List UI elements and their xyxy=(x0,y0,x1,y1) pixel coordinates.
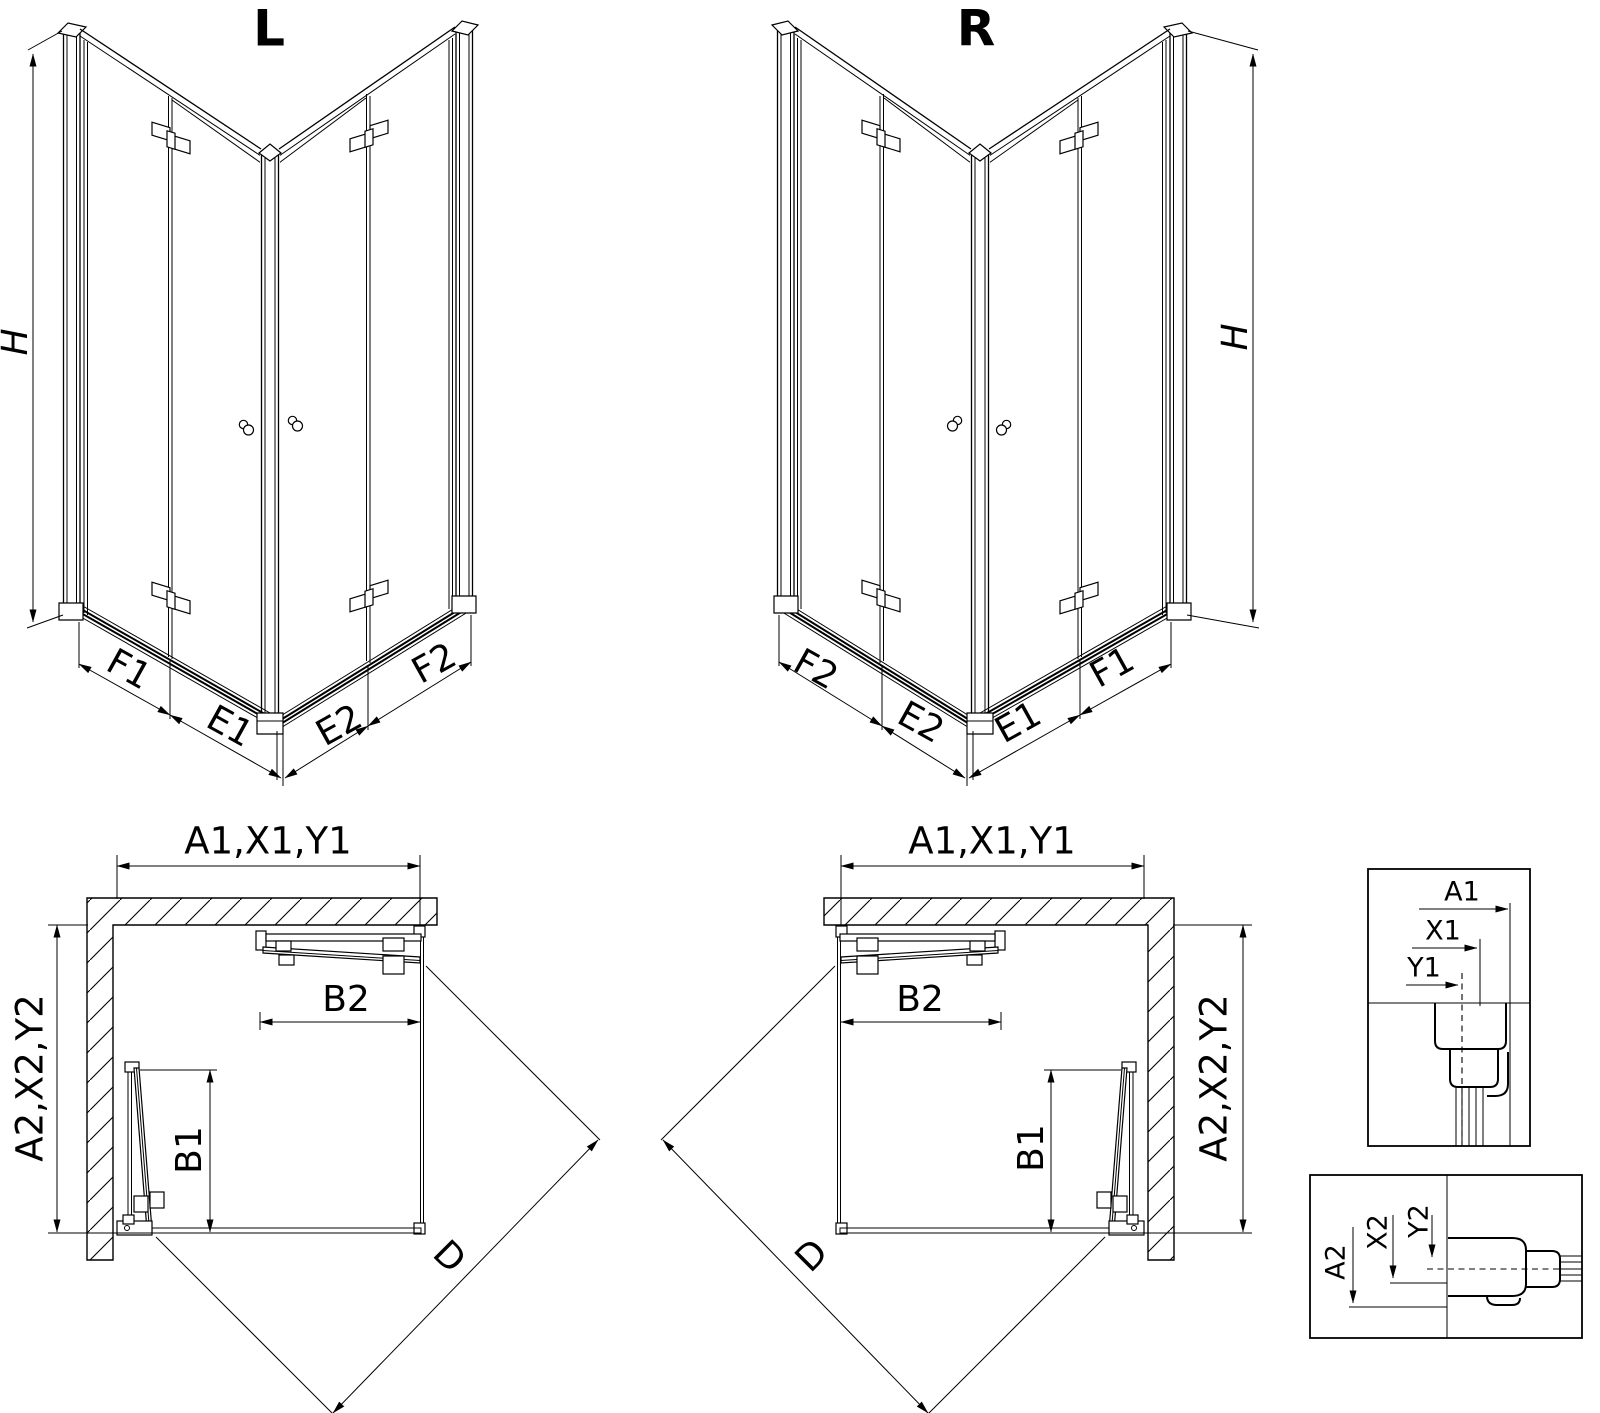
dim-depth-left-plan: A2,X2,Y2 xyxy=(9,994,52,1161)
dim-depth-right-plan: A2,X2,Y2 xyxy=(1193,994,1236,1161)
plan-view-left xyxy=(48,855,600,1413)
detail-a1-label: A1 xyxy=(1444,877,1480,908)
detail-a2-label: A2 xyxy=(1321,1244,1352,1280)
detail-x1-label: X1 xyxy=(1425,916,1461,947)
dim-b1-right-plan: B1 xyxy=(1011,1124,1052,1172)
dim-diagonal-right-plan: D xyxy=(788,1232,837,1281)
shower-enclosure-diagram: L R H H F1 E1 E2 F2 F2 E2 E1 F1 A1,X1,Y1… xyxy=(0,0,1600,1413)
plan-view-right xyxy=(661,855,1252,1413)
detail-y2-label: Y2 xyxy=(1404,1204,1435,1239)
dim-b2-left-plan: B2 xyxy=(322,979,370,1020)
detail-box-top-profile xyxy=(1368,869,1530,1146)
dim-width-left-plan: A1,X1,Y1 xyxy=(184,820,351,863)
dim-width-right-plan: A1,X1,Y1 xyxy=(908,820,1075,863)
iso-view-left xyxy=(27,21,478,786)
view-title-left: L xyxy=(253,0,285,58)
iso-view-right xyxy=(772,21,1259,786)
dim-f1-left-view: F1 xyxy=(100,641,158,698)
dim-f2-right-view: F2 xyxy=(787,641,845,698)
view-title-right: R xyxy=(957,0,996,58)
detail-x2-label: X2 xyxy=(1363,1214,1394,1250)
dim-height-right: H xyxy=(1215,323,1256,350)
dim-e1-right-view: E1 xyxy=(988,694,1048,752)
dim-height-left: H xyxy=(0,328,36,355)
dim-b2-right-plan: B2 xyxy=(896,979,944,1020)
dim-f2-left-view: F2 xyxy=(405,635,463,692)
detail-y1-label: Y1 xyxy=(1406,953,1441,984)
dim-b1-left-plan: B1 xyxy=(169,1126,210,1174)
technical-drawing-page: L R H H F1 E1 E2 F2 F2 E2 E1 F1 A1,X1,Y1… xyxy=(0,0,1600,1413)
dim-diagonal-left-plan: D xyxy=(425,1233,474,1282)
dim-e2-left-view: E2 xyxy=(309,697,369,755)
dim-f1-right-view: F1 xyxy=(1083,639,1141,696)
